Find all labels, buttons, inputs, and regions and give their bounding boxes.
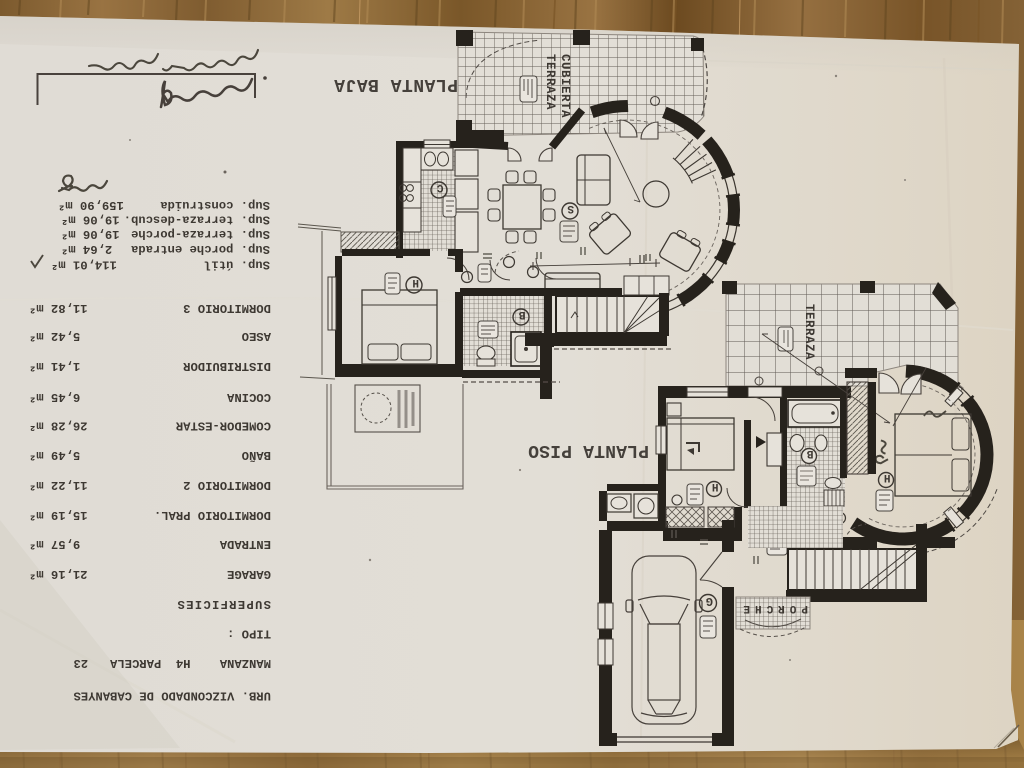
svg-text:ASEO: ASEO <box>242 329 271 343</box>
svg-text:H: H <box>884 471 891 483</box>
svg-text:BAÑO: BAÑO <box>242 448 271 463</box>
svg-text:DORMITORIO 3: DORMITORIO 3 <box>183 301 271 315</box>
svg-text:19,06 m²: 19,06 m² <box>61 227 120 241</box>
svg-text:Sup. terraza-descub.: Sup. terraza-descub. <box>124 213 270 227</box>
svg-text:TERRAZA: TERRAZA <box>802 304 816 360</box>
svg-text:114,01 m²: 114,01 m² <box>51 258 117 272</box>
svg-text:DORMITORIO 2: DORMITORIO 2 <box>183 478 271 492</box>
svg-text:PLANTA BAJA: PLANTA BAJA <box>334 74 458 94</box>
svg-text:21,16 m²: 21,16 m² <box>29 567 88 581</box>
svg-text:DORMITORIO PRAL.: DORMITORIO PRAL. <box>154 508 271 522</box>
svg-text:15,19 m²: 15,19 m² <box>29 508 88 522</box>
svg-text:Sup. porche entrada: Sup. porche entrada <box>130 242 270 256</box>
svg-text:TERRAZA: TERRAZA <box>543 54 557 110</box>
svg-text:G: G <box>706 594 713 608</box>
svg-text:Sup. construida: Sup. construida <box>160 198 270 212</box>
svg-text:B: B <box>519 308 526 320</box>
svg-text:SUPERFICIES: SUPERFICIES <box>176 597 271 611</box>
svg-text:COMEDOR-ESTAR: COMEDOR-ESTAR <box>175 419 271 433</box>
svg-text:9,57 m²: 9,57 m² <box>29 537 80 551</box>
svg-text:5,42 m²: 5,42 m² <box>29 329 80 343</box>
svg-text:11,22 m²: 11,22 m² <box>29 478 88 492</box>
svg-text:159,90 m²: 159,90 m² <box>58 198 124 212</box>
svg-text:DISTRIBUIDOR: DISTRIBUIDOR <box>183 359 271 373</box>
svg-text:PLANTA PISO: PLANTA PISO <box>528 440 649 460</box>
svg-text:ENTRADA: ENTRADA <box>219 537 271 551</box>
svg-text:1,41 m²: 1,41 m² <box>29 359 80 373</box>
svg-text:S: S <box>567 202 574 214</box>
svg-text:B: B <box>807 447 814 459</box>
svg-text:CUBIERTA: CUBIERTA <box>558 54 572 118</box>
svg-text:Sup. útil: Sup. útil <box>204 258 270 272</box>
svg-text:H: H <box>712 480 719 492</box>
svg-text:GARAGE: GARAGE <box>227 567 271 581</box>
svg-text:H: H <box>412 276 419 288</box>
svg-text:Sup. terraza-porche: Sup. terraza-porche <box>131 227 270 241</box>
svg-text:TIPO :: TIPO : <box>227 627 271 641</box>
svg-text:URB. VIZCONDADO DE CABANYES: URB. VIZCONDADO DE CABANYES <box>74 689 271 703</box>
svg-text:5,49 m²: 5,49 m² <box>29 448 80 462</box>
svg-text:11,82 m²: 11,82 m² <box>29 301 88 315</box>
svg-text:C: C <box>437 181 444 193</box>
svg-text:MANZANA H4 PARCELA 23: MANZANA H4 PARCELA 23 <box>74 656 271 670</box>
svg-text:COCINA: COCINA <box>226 390 271 404</box>
svg-text:6,45 m²: 6,45 m² <box>29 390 80 404</box>
svg-text:26,28 m²: 26,28 m² <box>29 419 88 433</box>
svg-text:2,64 m²: 2,64 m² <box>61 242 112 256</box>
svg-text:19,06 m²: 19,06 m² <box>61 213 120 227</box>
svg-text:PORCHE: PORCHE <box>738 602 808 614</box>
